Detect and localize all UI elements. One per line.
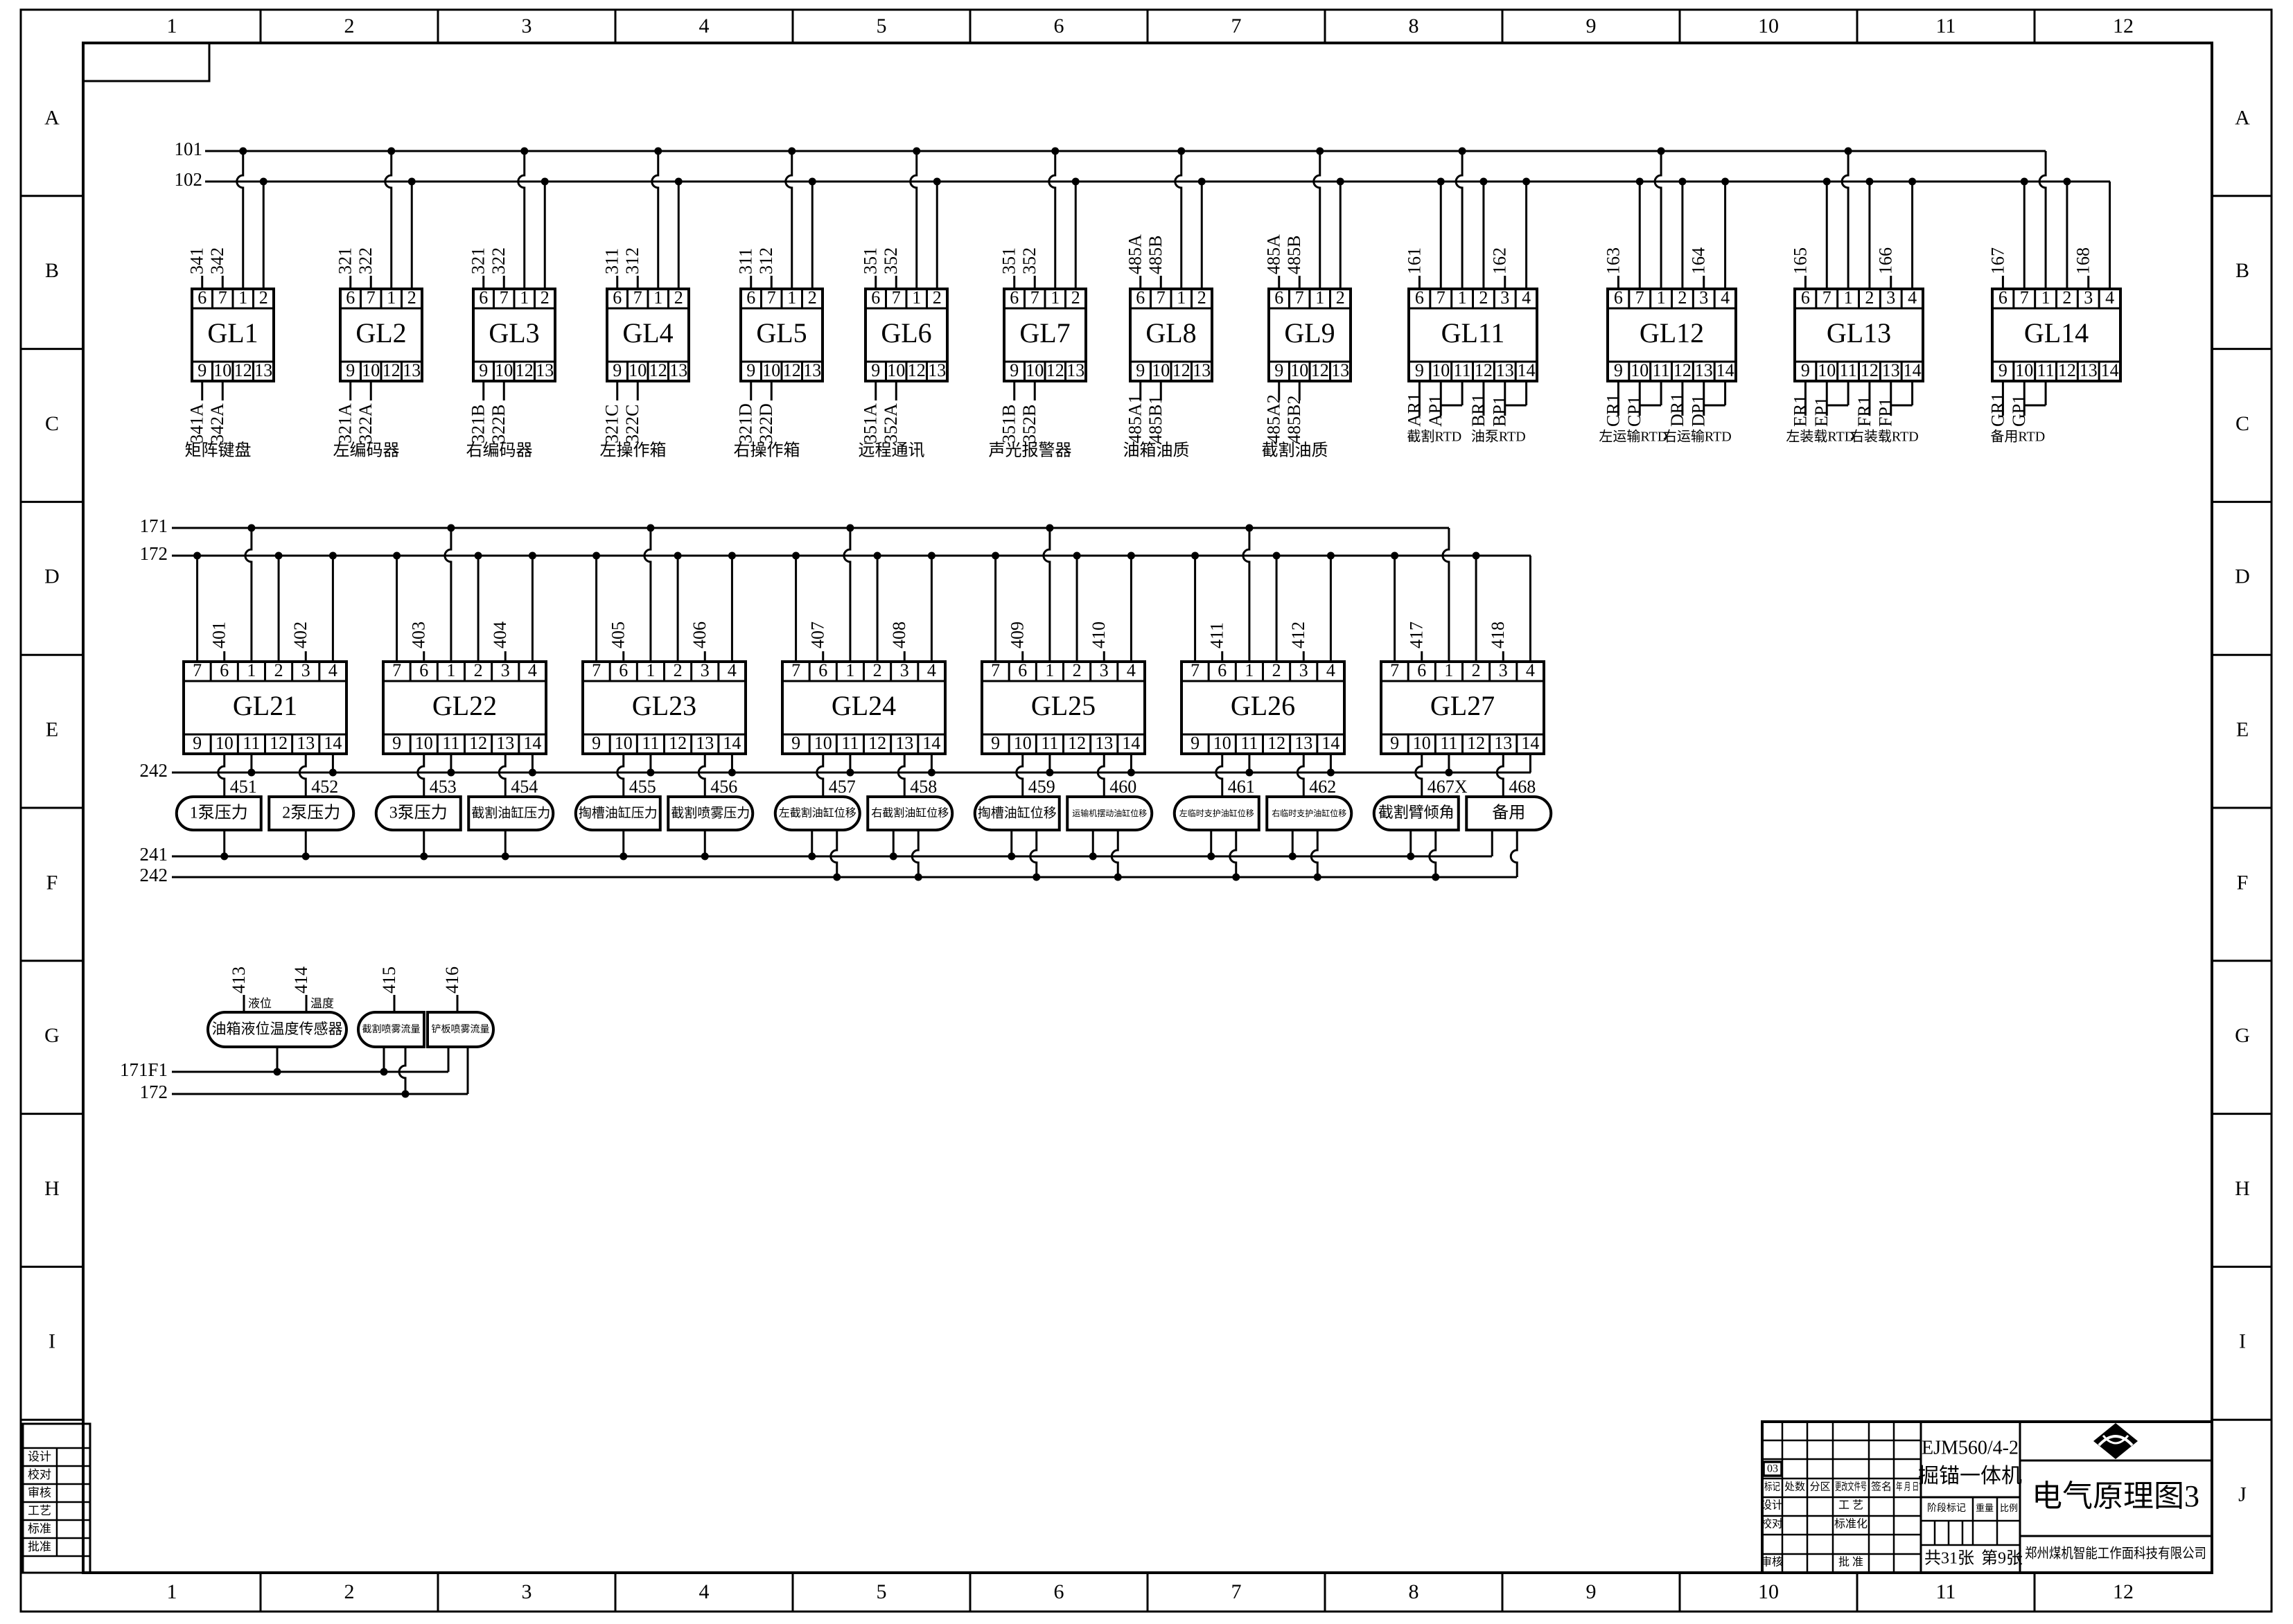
wire-number: GR1 [1987, 393, 2008, 427]
pin-label: 14 [2101, 360, 2119, 380]
junction-dot [1459, 148, 1466, 155]
wire-number: 413 [229, 967, 249, 994]
wire-number: 485A1 [1125, 394, 1145, 443]
wire-number: 321B [468, 405, 489, 443]
grid-col-label-top: 11 [1936, 15, 1956, 37]
grid-row-label-left: B [45, 259, 59, 282]
pin-label: 13 [1193, 360, 1211, 380]
pin-label: 12 [383, 360, 401, 380]
pin-label: 11 [243, 733, 260, 753]
block-GL9: 67129101213GL9485A485B485A2485B2截割油质 [1262, 148, 1351, 460]
pin-label: 12 [469, 733, 487, 753]
pin-label: 1 [912, 288, 921, 308]
title-header-cell: 分区 [1809, 1481, 1830, 1492]
grid-col-label-top: 10 [1758, 15, 1779, 37]
pin-label: 10 [1432, 360, 1450, 380]
pin-label: 10 [814, 733, 832, 753]
logo-diamond [2093, 1423, 2138, 1459]
pin-label: 2 [1272, 660, 1281, 680]
pin-label: 7 [991, 660, 1000, 680]
junction-dot [1391, 552, 1398, 560]
block-GL2: 67129101213GL2321322321A322A左编码器 [333, 148, 423, 460]
junction-dot [792, 552, 800, 560]
sensor-label: 1泵压力 [190, 804, 248, 822]
wire-number: 351 [999, 247, 1019, 274]
block-name: GL4 [622, 317, 673, 348]
pin-label: 2 [1071, 288, 1080, 308]
approval-role: 审核 [1761, 1556, 1783, 1569]
product-name: 掘锚一体机 [1918, 1465, 2022, 1488]
wire-number: EP1 [1811, 397, 1831, 427]
junction-dot [1522, 178, 1530, 186]
wire-number: BR1 [1468, 394, 1488, 427]
pin-label: 9 [193, 733, 202, 753]
wire-hop [445, 528, 451, 662]
wire-hop [237, 151, 243, 289]
sensor-wire-number: 452 [311, 777, 338, 797]
block-GL23: 76123491011121314GL23405406455掏槽油缸压力456截… [576, 524, 753, 860]
pin-label: 1 [1844, 288, 1853, 308]
pin-label: 6 [1018, 660, 1027, 680]
sensor-454: 454截割油缸压力 [468, 754, 553, 860]
junction-dot [1445, 769, 1452, 777]
pin-label: 1 [1657, 288, 1666, 308]
block-name: GL14 [2024, 317, 2089, 348]
junction-dot [239, 148, 247, 155]
approval-role: 设计 [1761, 1499, 1783, 1512]
sensor-label: 铲板喷雾流量 [432, 1024, 490, 1035]
wire-number: 165 [1790, 247, 1810, 274]
wire-number: 352 [1019, 247, 1039, 274]
wire-number: 321C [602, 405, 622, 443]
device-label: 远程通讯 [859, 441, 925, 460]
wire-number: GP1 [2009, 395, 2029, 427]
pin-label: 4 [1526, 660, 1535, 680]
junction-dot [1008, 853, 1015, 860]
sensor-label: 右临时支护油缸位移 [1272, 808, 1346, 818]
product-model: EJM560/4-2 [1922, 1437, 2019, 1458]
pin-label: 2 [808, 288, 817, 308]
block-GL22: 76123491011121314GL224034044533泵压力454截割油… [376, 524, 554, 860]
sensor-wire-number: 460 [1109, 777, 1136, 797]
junction-dot [502, 853, 509, 860]
junction-dot [1908, 178, 1916, 186]
device-label: 左装载RTD [1786, 429, 1854, 445]
aux-sensor-2: 截割喷雾流量415 [358, 967, 424, 1098]
sensor-label: 右截割油缸位移 [871, 806, 949, 820]
wire-number: 164 [1689, 247, 1709, 274]
device-label: 右运输RTD [1663, 429, 1732, 445]
wire-number: 417 [1407, 621, 1427, 648]
junction-dot [913, 148, 920, 155]
pin-label: 11 [2037, 360, 2055, 380]
device-label: 截割RTD [1407, 429, 1461, 445]
junction-dot [846, 524, 854, 532]
junction-dot [592, 552, 600, 560]
wire-number: 485A2 [1264, 394, 1284, 443]
junction-dot [408, 178, 416, 186]
block-name: GL22 [432, 690, 497, 721]
junction-dot [1273, 552, 1281, 560]
sensor-label: 截割臂倾角 [1378, 804, 1455, 821]
pin-label: 13 [2080, 360, 2098, 380]
pin-label: 12 [868, 733, 886, 753]
pin-label: 9 [1801, 360, 1810, 380]
grid-col-label-bottom: 1 [167, 1580, 177, 1603]
junction-dot [1337, 178, 1344, 186]
pin-label: 2 [873, 660, 882, 680]
grid-col-label-bottom: 12 [2113, 1580, 2134, 1603]
junction-dot [302, 853, 310, 860]
pin-label: 13 [669, 360, 687, 380]
pin-label: 12 [1172, 360, 1191, 380]
grid-row-label-right: E [2236, 718, 2249, 741]
junction-dot [928, 552, 935, 560]
grid-row-label-left: A [44, 106, 60, 129]
pin-label: 13 [895, 733, 913, 753]
grid-row-label-right: A [2235, 106, 2250, 129]
title-header-cell: 更改文件号 [1835, 1481, 1867, 1492]
pin-label: 10 [1818, 360, 1836, 380]
junction-dot [402, 1091, 410, 1098]
junction-dot [1327, 769, 1335, 777]
junction-dot [808, 853, 816, 860]
wire-hop [1416, 754, 1422, 797]
aux-sensor-1: 油箱液位温度传感器413液位414温度 [208, 967, 346, 1076]
wire-hop [911, 151, 917, 289]
junction-dot [1437, 178, 1445, 186]
pin-label: 9 [1010, 360, 1019, 380]
title-header-cell: 标记 [1764, 1481, 1780, 1492]
wire-hop [1311, 830, 1317, 877]
junction-dot [1198, 178, 1206, 186]
pin-label: 10 [1026, 360, 1044, 380]
sensor-453: 4533泵压力 [376, 754, 461, 860]
pin-label: 6 [1614, 288, 1623, 308]
sensor-label: 掏槽油缸位移 [978, 805, 1057, 820]
pin-label: 10 [762, 360, 780, 380]
pin-label: 2 [1479, 288, 1488, 308]
pin-label: 12 [669, 733, 687, 753]
wire-number: 167 [1987, 247, 2008, 274]
title-header-cell: 签名 [1871, 1481, 1892, 1492]
pin-label: 9 [1415, 360, 1424, 380]
pin-label: 13 [254, 360, 272, 380]
wire-hop [898, 754, 904, 797]
junction-dot [447, 769, 455, 777]
pin-label: 10 [1290, 360, 1308, 380]
block-GL26: 76123491011121314GL26411412461左临时支护油缸位移4… [1175, 524, 1352, 881]
junction-dot [1127, 552, 1135, 560]
pin-label: 13 [1294, 733, 1312, 753]
sensor-label: 油箱液位温度传感器 [212, 1021, 343, 1037]
block-name: GL2 [355, 317, 406, 348]
junction-dot [1177, 148, 1185, 155]
junction-dot [260, 178, 267, 186]
pin-label: 13 [1331, 360, 1349, 380]
pin-label: 2 [407, 288, 416, 308]
pin-label: 12 [1046, 360, 1064, 380]
junction-dot [1479, 178, 1487, 186]
pin-label: 9 [1274, 360, 1283, 380]
junction-dot [992, 552, 999, 560]
sensor-wire-number: 451 [230, 777, 257, 797]
approval-role: 批 准 [1838, 1556, 1863, 1569]
pin-label: 11 [1840, 360, 1857, 380]
pin-label: 1 [1444, 660, 1453, 680]
pin-label: 9 [791, 733, 800, 753]
junction-dot [329, 552, 337, 560]
junction-dot [380, 1068, 388, 1076]
pin-label: 13 [1882, 360, 1900, 380]
pin-label: 9 [1191, 733, 1200, 753]
sensor-label: 截割喷雾流量 [362, 1023, 421, 1035]
pin-label: 7 [1030, 288, 1039, 308]
bus-label-241: 241 [140, 844, 168, 865]
device-label: 矩阵键盘 [185, 441, 252, 460]
wire-hop [1243, 528, 1249, 662]
junction-dot [833, 874, 841, 881]
pin-label: 7 [633, 288, 642, 308]
wire-number: 406 [689, 621, 710, 648]
pin-label: 6 [746, 288, 755, 308]
wire-hop [617, 754, 624, 797]
pin-label: 10 [1213, 733, 1231, 753]
junction-dot [1636, 178, 1644, 186]
wire-hop [2039, 151, 2046, 289]
pin-label: 11 [1240, 733, 1258, 753]
block-name: GL1 [207, 317, 258, 348]
wire-number: 163 [1603, 247, 1623, 274]
pin-label: 7 [218, 288, 227, 308]
block-GL4: 67129101213GL4311312321C322C左操作箱 [600, 148, 689, 460]
pin-label: 12 [783, 360, 801, 380]
pin-label: 1 [1045, 660, 1054, 680]
block-name: GL12 [1640, 317, 1704, 348]
pin-label: 3 [1499, 660, 1508, 680]
block-GL21: 76123491011121314GL214014024511泵压力4522泵压… [177, 524, 354, 860]
pin-label: 2 [1865, 288, 1874, 308]
junction-dot [915, 874, 922, 881]
sensor-451: 4511泵压力 [177, 754, 261, 860]
wire-number: FR1 [1854, 396, 1874, 427]
junction-dot [387, 148, 395, 155]
wire-hop [652, 151, 658, 289]
device-label: 油箱油质 [1123, 441, 1190, 460]
pin-label: 12 [1467, 733, 1485, 753]
pin-label: 10 [1631, 360, 1649, 380]
wire-number: 485B2 [1284, 396, 1304, 443]
pin-label: 7 [1191, 660, 1200, 680]
grid-col-label-bottom: 5 [877, 1580, 887, 1603]
pin-label: 13 [496, 733, 514, 753]
pin-label: 6 [1801, 288, 1810, 308]
pin-label: 1 [446, 660, 455, 680]
drawing-title: 电气原理图3 [2032, 1479, 2199, 1513]
wire-hop [1314, 151, 1320, 289]
device-label: 左编码器 [333, 441, 400, 460]
bus-label-242-top: 242 [140, 760, 168, 781]
wire-number: 411 [1207, 622, 1227, 648]
wire-hop [1049, 151, 1055, 289]
wire-hop [1175, 151, 1181, 289]
junction-dot [846, 769, 854, 777]
schematic-canvas: 112233445566778899101011111212AABBCCDDEE… [0, 0, 2293, 1621]
company-name: 郑州煤机智能工作面科技有限公司 [2025, 1546, 2206, 1562]
wire-number: 161 [1404, 247, 1424, 274]
wire-hop [1230, 830, 1236, 877]
device-label: 左运输RTD [1599, 429, 1667, 445]
device-label: 声光报警器 [989, 441, 1072, 460]
wire-number: 415 [379, 967, 399, 994]
grid-col-label-bottom: 8 [1409, 1580, 1419, 1603]
side-approval-role: 审核 [28, 1486, 51, 1499]
sensor-label: 掏槽油缸压力 [579, 805, 658, 820]
junction-dot [1316, 148, 1324, 155]
junction-dot [728, 769, 736, 777]
pin-label: 2 [1678, 288, 1687, 308]
pin-label: 9 [592, 733, 601, 753]
grid-row-label-right: D [2235, 565, 2250, 588]
pin-label: 6 [1010, 288, 1019, 308]
junction-dot [475, 552, 482, 560]
pin-label: 6 [1415, 288, 1424, 308]
pin-label: 12 [1673, 360, 1692, 380]
pin-label: 2 [274, 660, 283, 680]
junction-dot [1232, 874, 1240, 881]
pin-label: 10 [213, 360, 231, 380]
pin-label: 6 [419, 660, 428, 680]
pin-label: 2 [1073, 660, 1082, 680]
pin-label: 7 [1437, 288, 1446, 308]
junction-dot [247, 769, 255, 777]
block-name: GL5 [756, 317, 807, 348]
corner-reference-box [83, 43, 209, 81]
junction-dot [1127, 769, 1135, 777]
block-GL3: 67129101213GL3321322321B322B右编码器 [466, 148, 556, 460]
device-label: 备用RTD [1990, 429, 2045, 445]
pin-label: 1 [1315, 288, 1324, 308]
wire-number: 321A [335, 403, 355, 443]
wire-number: 405 [608, 621, 629, 648]
pin-label: 12 [270, 733, 288, 753]
wire-number: 352 [881, 247, 901, 274]
wire-hop [786, 151, 792, 289]
side-approval-role: 工艺 [28, 1504, 51, 1517]
pin-label: 11 [642, 733, 659, 753]
wire-number: 341 [187, 247, 207, 274]
grid-col-label-bottom: 6 [1054, 1580, 1064, 1603]
title-block: 标记处数分区更改文件号签名年 月 日03设计工 艺校对标准化审核批 准EJM56… [1761, 1422, 2212, 1573]
junction-dot [274, 1068, 281, 1076]
wire-number: 312 [622, 247, 642, 274]
pin-label: 9 [1390, 733, 1399, 753]
pin-label: 13 [1695, 360, 1713, 380]
pin-label: 7 [592, 660, 601, 680]
sheets-total: 共31张 [1924, 1549, 1974, 1568]
wire-number: 322A [355, 403, 376, 443]
block-GL11: 67123491011121314GL11161162AR1AP1截割RTDBR… [1404, 148, 1537, 445]
pin-label: 6 [1274, 288, 1283, 308]
pin-label: 14 [723, 733, 741, 753]
wire-hop [1098, 754, 1104, 797]
grid-row-label-right: G [2235, 1024, 2250, 1047]
approval-role: 标准化 [1834, 1518, 1868, 1530]
junction-dot [1114, 874, 1122, 881]
pin-label: 14 [1321, 733, 1339, 753]
pin-label: 11 [1454, 360, 1471, 380]
pin-label: 4 [2105, 288, 2114, 308]
block-GL8: 67129101213GL8485A485B485A1485B1油箱油质 [1123, 148, 1213, 460]
block-GL25: 76123491011121314GL25409410459掏槽油缸位移460运… [975, 524, 1152, 881]
sensor-wire-number: 467X [1427, 777, 1468, 797]
pin-label: 6 [479, 288, 488, 308]
device-label: 油泵RTD [1471, 429, 1526, 445]
wire-number: 321D [736, 403, 756, 443]
wire-number: BP1 [1490, 396, 1510, 427]
pin-label: 6 [818, 660, 827, 680]
grid-col-label-bottom: 7 [1231, 1580, 1242, 1603]
junction-dot [1046, 769, 1053, 777]
pin-label: 6 [1136, 288, 1145, 308]
pin-label: 3 [301, 660, 310, 680]
sensor-wire-number: 453 [430, 777, 457, 797]
wire-number: DP1 [1689, 395, 1709, 427]
junction-dot [1865, 178, 1873, 186]
pin-label: 9 [871, 360, 880, 380]
junction-dot [193, 552, 201, 560]
side-approval-role: 设计 [28, 1450, 51, 1463]
wire-number: 311 [602, 248, 622, 274]
pin-label: 4 [1326, 660, 1335, 680]
pin-label: 1 [845, 660, 854, 680]
bus-label-242-bottom: 242 [140, 865, 168, 885]
pin-label: 12 [1861, 360, 1879, 380]
junction-dot [874, 552, 881, 560]
grid-col-label-top: 12 [2113, 15, 2134, 37]
bus-label-172: 172 [140, 543, 168, 564]
junction-dot [1072, 178, 1080, 186]
pin-label: 3 [1500, 288, 1509, 308]
block-name: GL21 [233, 690, 297, 721]
pin-label: 13 [1496, 360, 1514, 380]
junction-dot [1473, 552, 1480, 560]
wire-number: 322 [489, 247, 509, 274]
bus-label-101: 101 [175, 139, 203, 159]
junction-dot [701, 853, 709, 860]
sensor-label: 左截割油缸位移 [779, 806, 856, 820]
block-GL12: 67123491011121314GL12163164CR1CP1左运输RTDD… [1599, 148, 1736, 445]
wire-number: 351 [861, 247, 881, 274]
pin-label: 7 [392, 660, 401, 680]
junction-dot [1845, 148, 1852, 155]
pin-label: 7 [1157, 288, 1166, 308]
pin-label: 7 [892, 288, 901, 308]
wire-number: ER1 [1790, 395, 1810, 427]
block-name: GL23 [632, 690, 696, 721]
wire-number: DR1 [1667, 393, 1687, 427]
company-logo [2093, 1423, 2138, 1459]
pin-label: 12 [1068, 733, 1086, 753]
pin-label: 11 [841, 733, 859, 753]
wire-sub-label: 温度 [310, 997, 334, 1010]
side-approval-role: 批准 [28, 1540, 51, 1553]
pin-label: 10 [1413, 733, 1431, 753]
pin-label: 12 [2058, 360, 2076, 380]
wire-hop [817, 754, 823, 797]
wire-hop [499, 754, 505, 797]
wire-number: 351B [999, 405, 1019, 443]
